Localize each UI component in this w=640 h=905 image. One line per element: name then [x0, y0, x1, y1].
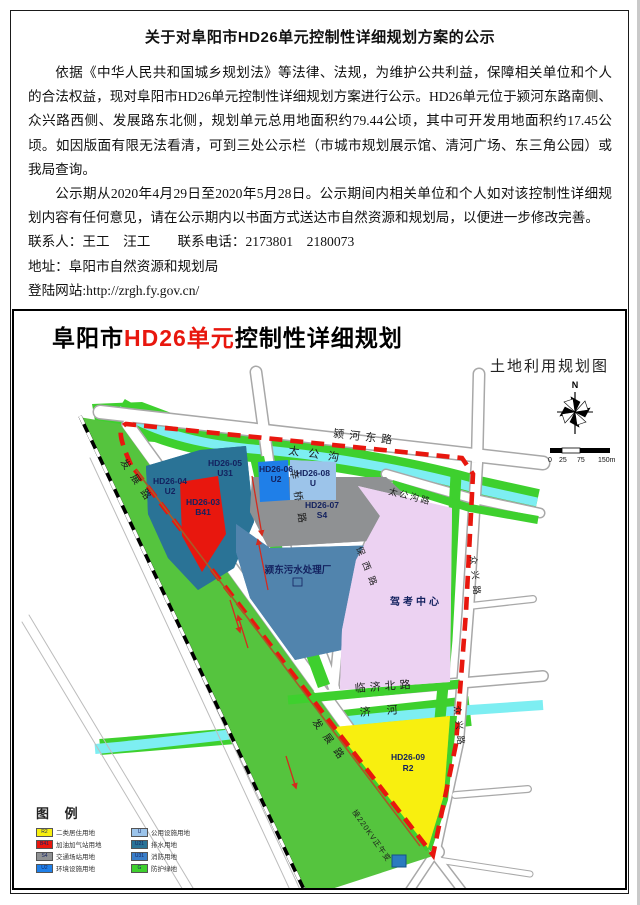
label-hd26-07-use: S4: [317, 510, 328, 520]
scale-tick-75: 75: [577, 457, 585, 464]
legend-swatch: B41: [36, 840, 53, 849]
north-label: N: [572, 380, 579, 390]
map-legend: 图 例 R2二类居住用地B41加油加气站用地S4交通场站用地U2环境设施用地U公…: [36, 803, 226, 874]
label-hd26-08-use: U: [310, 478, 316, 488]
legend-label: 防护绿地: [151, 863, 177, 873]
map-frame: HD26-04 U2 HD26-05 U31 HD26-03 B41 HD26-…: [12, 309, 627, 890]
label-hd26-08: HD26-08: [296, 468, 330, 478]
contact-line: 联系人：王工 汪工 联系电话：2173801 2180073: [28, 230, 612, 254]
map-title-suffix: 控制性详细规划: [235, 325, 403, 351]
legend-label: 环境设施用地: [56, 863, 95, 873]
map-title-unit: HD26单元: [124, 325, 235, 351]
map-subtitle: 土地利用规划图: [490, 355, 609, 376]
notice-paragraph-2: 公示期从2020年4月29日至2020年5月28日。公示期间内相关单位和个人如对…: [28, 182, 612, 230]
notice-title: 关于对阜阳市HD26单元控制性详细规划方案的公示: [28, 26, 612, 47]
legend-swatch: U21: [131, 840, 148, 849]
label-driving-center: 驾考中心: [389, 595, 442, 608]
scale-tick-150: 150m: [598, 457, 616, 464]
legend-label: 加油加气站用地: [56, 839, 102, 849]
legend-label: 二类居住用地: [56, 827, 95, 837]
label-hd26-09-use: R2: [403, 763, 414, 773]
legend-item: B41加油加气站用地: [36, 839, 131, 849]
scale-tick-25: 25: [559, 457, 567, 464]
landuse-map: HD26-04 U2 HD26-05 U31 HD26-03 B41 HD26-…: [14, 311, 625, 888]
legend-label: 消防用地: [151, 851, 177, 861]
legend-item: G防护绿地: [131, 863, 226, 873]
label-hd26-09: HD26-09: [391, 752, 425, 762]
legend-heading: 图 例: [36, 803, 226, 822]
label-sewage-plant: 颍东污水处理厂: [264, 564, 332, 576]
legend-item: U21排水用地: [131, 839, 226, 849]
legend-swatch: U: [131, 828, 148, 837]
legend-label: 交通场站用地: [56, 851, 95, 861]
legend-swatch: U31: [131, 852, 148, 861]
scale-bar: [550, 448, 610, 453]
address-line: 地址：阜阳市自然资源和规划局: [28, 255, 612, 279]
legend-swatch: G: [131, 864, 148, 873]
label-hd26-05: HD26-05: [208, 458, 242, 468]
notice-section: 关于对阜阳市HD26单元控制性详细规划方案的公示 依据《中华人民共和国城乡规划法…: [28, 22, 612, 332]
legend-item: U2环境设施用地: [36, 863, 131, 873]
north-compass-icon: [557, 392, 593, 434]
legend-label: 公用设施用地: [151, 827, 190, 837]
label-hd26-03: HD26-03: [186, 497, 220, 507]
legend-item: R2二类居住用地: [36, 827, 131, 837]
legend-item: U31消防用地: [131, 851, 226, 861]
legend-item: U公用设施用地: [131, 827, 226, 837]
label-hd26-05-use: U31: [217, 468, 233, 478]
label-hd26-04-use: U2: [165, 486, 176, 496]
legend-label: 排水用地: [151, 839, 177, 849]
substation-square: [392, 855, 406, 867]
label-hd26-06-use: U2: [271, 474, 282, 484]
map-title-prefix: 阜阳市: [52, 325, 124, 351]
legend-item: S4交通场站用地: [36, 851, 131, 861]
scale-tick-0: 0: [548, 457, 552, 464]
legend-swatch: R2: [36, 828, 53, 837]
label-hd26-07: HD26-07: [305, 500, 339, 510]
legend-swatch: S4: [36, 852, 53, 861]
label-hd26-04: HD26-04: [153, 476, 187, 486]
public-notice-page: 关于对阜阳市HD26单元控制性详细规划方案的公示 依据《中华人民共和国城乡规划法…: [0, 0, 640, 905]
legend-swatch: U2: [36, 864, 53, 873]
website-line: 登陆网站:http://zrgh.fy.gov.cn/: [28, 279, 612, 303]
label-hd26-03-use: B41: [195, 507, 211, 517]
legend-grid: R2二类居住用地B41加油加气站用地S4交通场站用地U2环境设施用地U公用设施用…: [36, 827, 226, 874]
map-title: 阜阳市HD26单元控制性详细规划: [52, 319, 403, 353]
notice-paragraph-1: 依据《中华人民共和国城乡规划法》等法律、法规，为维护公共利益，保障相关单位和个人…: [28, 61, 612, 182]
